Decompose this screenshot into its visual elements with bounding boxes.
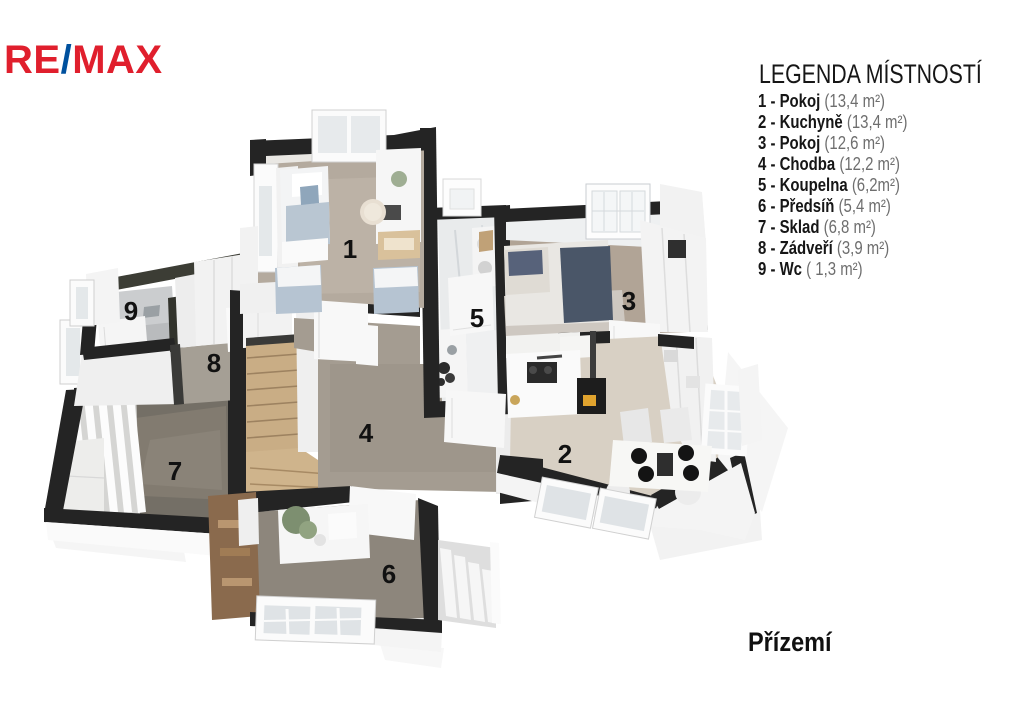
svg-text:5: 5 [470,303,484,333]
svg-text:7: 7 [168,456,182,486]
svg-text:8: 8 [207,348,221,378]
svg-text:6: 6 [382,559,396,589]
svg-text:2: 2 [558,439,572,469]
svg-text:4: 4 [359,418,374,448]
svg-text:3: 3 [622,286,636,316]
svg-text:9: 9 [124,296,138,326]
svg-text:1: 1 [343,234,357,264]
